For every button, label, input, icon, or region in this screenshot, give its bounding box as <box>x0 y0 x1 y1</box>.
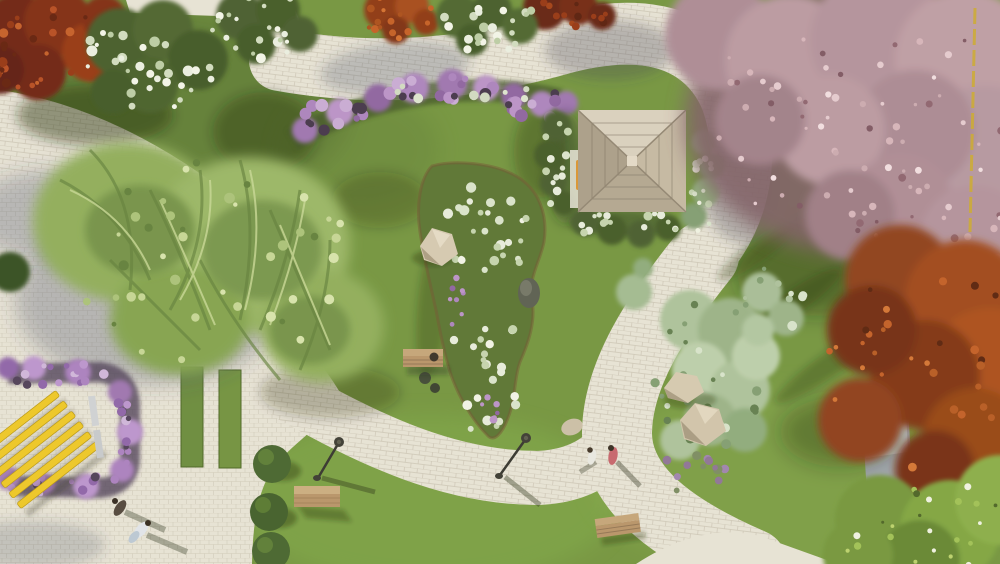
park-scene-svg <box>0 0 1000 564</box>
park-aerial-render <box>0 0 1000 564</box>
sunlight-wash <box>0 0 1000 564</box>
